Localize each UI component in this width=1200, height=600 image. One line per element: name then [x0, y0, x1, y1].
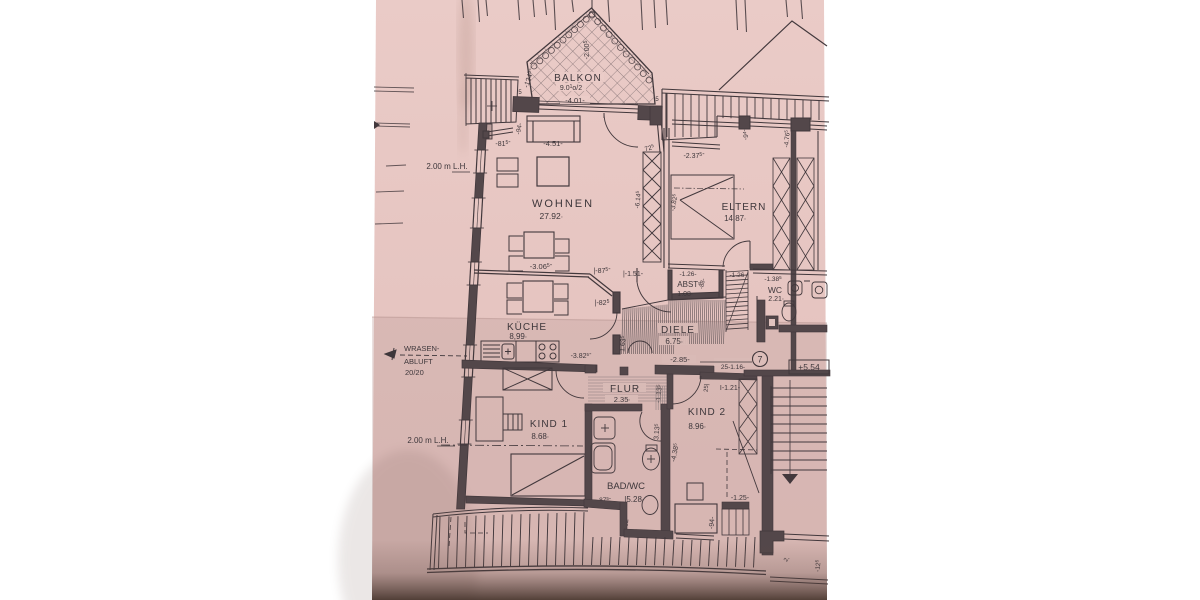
svg-text:7: 7	[757, 355, 762, 365]
svg-text:6.75▫: 6.75▫	[665, 337, 683, 346]
svg-text:2.35▫: 2.35▫	[614, 395, 631, 404]
svg-text:I-1.21-: I-1.21-	[720, 385, 741, 392]
svg-text:-4.51-: -4.51-	[543, 139, 563, 148]
svg-text:25-1.16-: 25-1.16-	[721, 364, 745, 371]
svg-text:WOHNEN: WOHNEN	[532, 198, 594, 210]
svg-text:DIELE: DIELE	[661, 325, 695, 336]
svg-text:ABST5: ABST5	[677, 280, 701, 289]
svg-text:8.96▫: 8.96▫	[688, 422, 706, 431]
svg-text:27.92▫: 27.92▫	[539, 211, 562, 221]
svg-text:8,99▫: 8,99▫	[509, 332, 527, 341]
svg-text:BAD/WC: BAD/WC	[607, 481, 645, 492]
svg-text:WC: WC	[768, 285, 782, 295]
svg-text:ABLUFT: ABLUFT	[404, 357, 433, 366]
svg-text:-1.25-: -1.25-	[731, 495, 750, 502]
svg-text:25|: 25|	[704, 383, 711, 392]
svg-text:8.68▫: 8.68▫	[531, 432, 549, 441]
svg-text:2.00 m L.H.: 2.00 m L.H.	[407, 436, 448, 445]
svg-text:-4.01-: -4.01-	[565, 96, 585, 105]
svg-text:2.21▫: 2.21▫	[768, 296, 784, 303]
svg-text:14.87▫: 14.87▫	[724, 214, 746, 223]
svg-text:ELTERN: ELTERN	[722, 202, 767, 213]
svg-text:-1.26-: -1.26-	[680, 271, 697, 278]
svg-text:WRASEN-: WRASEN-	[404, 344, 440, 353]
svg-text:+5.54: +5.54	[798, 362, 820, 372]
svg-text:KIND 2: KIND 2	[688, 407, 726, 418]
svg-text:-94-: -94-	[708, 516, 716, 530]
svg-text:2.00 m L.H.: 2.00 m L.H.	[426, 162, 467, 171]
svg-text:FLUR: FLUR	[610, 384, 640, 395]
svg-text:-2.85-: -2.85-	[670, 355, 690, 364]
svg-text:1.08▫: 1.08▫	[677, 291, 693, 298]
svg-text:20/20: 20/20	[405, 368, 424, 377]
svg-text:BALKON: BALKON	[554, 73, 602, 84]
svg-text:|-1.51-: |-1.51-	[623, 271, 644, 278]
svg-text:KIND 1: KIND 1	[530, 419, 568, 430]
